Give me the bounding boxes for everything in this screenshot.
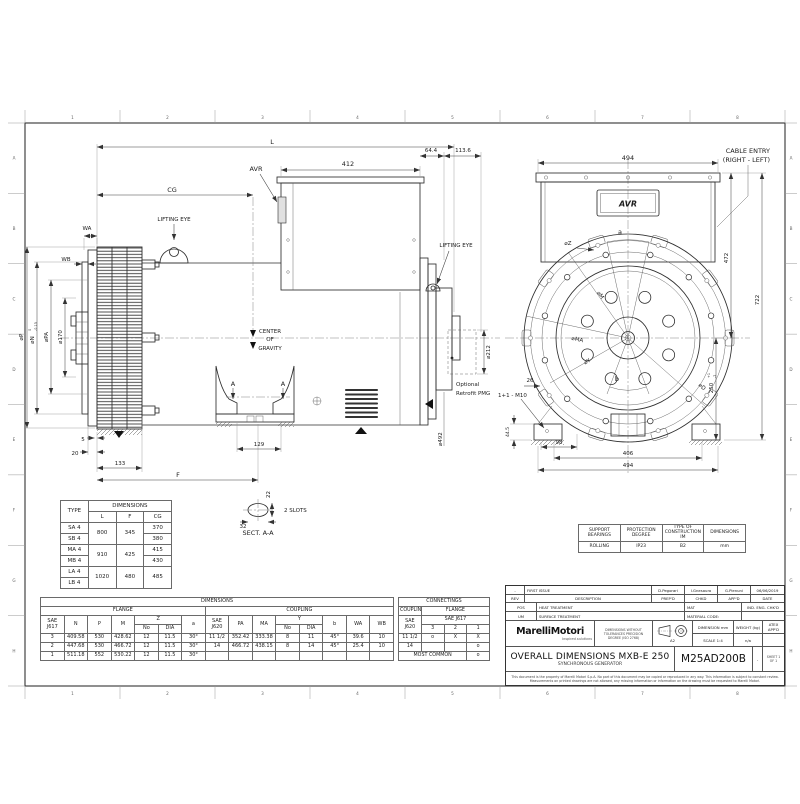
dim-N-tol-hi: 0 <box>28 329 32 331</box>
dims-table-cell: DIA <box>299 625 323 634</box>
sheet-of: OF 1 <box>770 659 777 663</box>
tolerance-note: DIMENSIONS WITHOUT TOLERANCES PRECISION … <box>594 621 652 646</box>
conn-table-cell: X <box>444 634 467 643</box>
dims-table-cell: M <box>111 616 135 634</box>
dim-44-5: 44.5 <box>505 427 511 437</box>
dims-table-cell: 30° <box>182 634 206 643</box>
type-table-cell: 370 <box>144 523 172 534</box>
atex-appd: ATEX APP'D <box>763 621 784 634</box>
approved-by: G.Pienuni <box>717 586 750 594</box>
frame-row-label: D <box>12 367 15 372</box>
atex-value <box>763 634 784 646</box>
label-cog-3: GRAVITY <box>258 346 282 352</box>
label-cog-2: OF <box>266 337 274 343</box>
frame-row-label: A <box>13 156 16 161</box>
dims-table-cell: 45° <box>323 643 347 652</box>
ground-symbol-icon <box>313 397 321 405</box>
dims-table-cell: 1 <box>41 652 65 661</box>
checked-by: I.Gnesauro <box>684 586 717 594</box>
frame-col-label: 5 <box>451 691 454 696</box>
dims-table-cell: 466.72 <box>111 643 135 652</box>
disclaimer-line2: Measurements on printed drawings are not… <box>530 679 761 683</box>
dims-table-cell: 511.18 <box>64 652 88 661</box>
weight-label: WEIGHT (kg) <box>734 621 762 634</box>
dims-table-cell: b <box>323 616 347 634</box>
type-table-cell: TYPE <box>61 501 89 523</box>
conn-table-cell: 3 <box>421 625 444 634</box>
frame-col-label: 4 <box>356 115 359 120</box>
type-table-cell: 415 <box>144 545 172 556</box>
mounting-foot <box>216 366 294 427</box>
dims-table-cell: Z <box>135 616 182 625</box>
type-table-cell: CG <box>144 512 172 523</box>
frame-col-label: 2 <box>166 691 169 696</box>
end-view: AVR <box>505 160 750 475</box>
dim-angle-b: b <box>615 375 619 383</box>
bear-table-cell: DIMENSIONS <box>704 525 746 542</box>
type-table-cell: 480 <box>116 567 144 589</box>
label-cable-entry-2: (RIGHT - LEFT) <box>723 156 770 164</box>
frame-row-label: A <box>790 156 793 161</box>
header-date: DATE <box>750 595 784 602</box>
dims-table-cell: 438.15 <box>252 643 276 652</box>
dims-table-cell: 45° <box>323 634 347 643</box>
dims-table-cell: COUPLING <box>205 607 393 616</box>
dims-table-cell: 30° <box>182 652 206 661</box>
dims-table-cell <box>323 652 347 661</box>
drawing-title-cell: OVERALL DIMENSIONS MXB-E 250 SYNCHRONOUS… <box>506 647 674 671</box>
dim-WA: WA <box>83 226 92 232</box>
label-cable-entry-1: CABLE ENTRY <box>726 147 770 155</box>
marelli-logo: MarelliMotori <box>508 626 592 637</box>
dims-table-cell: 333.38 <box>252 634 276 643</box>
type-table-cell: MB 4 <box>61 556 89 567</box>
title-block: - FIRST ISSUE D.Pegorari I.Gnesauro G.Pi… <box>505 585 785 686</box>
issue-date: 06/06/2019 <box>750 586 784 594</box>
frame-row-label: F <box>13 508 16 513</box>
projection-cell: A2 <box>652 621 692 646</box>
conn-table-cell: SAE J617 <box>421 616 489 625</box>
dims-table-cell: 12 <box>135 643 159 652</box>
frame-col-label: 1 <box>71 115 74 120</box>
conn-table-cell: o <box>421 634 444 643</box>
mat-label: MAT <box>684 603 741 611</box>
dim-N-tol-lo: -0.13 <box>34 322 38 331</box>
dims-table-cell <box>370 652 394 661</box>
dims-table-cell: 552 <box>88 652 112 661</box>
corrugated-plate <box>346 390 377 417</box>
frame-col-label: 8 <box>736 115 739 120</box>
frame-row-label: E <box>13 437 16 442</box>
dims-table-cell: P <box>88 616 112 634</box>
avr-unit-side <box>278 197 286 223</box>
dim-M: ⌀M <box>595 290 605 300</box>
dim-412: 412 <box>342 160 354 168</box>
conn-table-cell: SAE J620 <box>399 616 422 634</box>
conn-table-cell: 14 <box>399 643 422 652</box>
dims-table-cell: MA <box>252 616 276 634</box>
frame-col-label: 2 <box>166 115 169 120</box>
dims-table-cell: 530 <box>88 643 112 652</box>
bear-table-cell: B2 <box>662 541 704 552</box>
dim-113-6: 113.6 <box>455 148 471 154</box>
dims-table-cell: 352.42 <box>229 634 253 643</box>
dims-table-cell: 10 <box>370 634 394 643</box>
support-bearings-table: SUPPORT BEARINGSPROTECTION DEGREETYPE OF… <box>578 524 746 553</box>
dim-F: F <box>176 471 180 479</box>
frame-row-label: H <box>789 648 792 653</box>
dims-table-cell: Y <box>276 616 323 625</box>
dims-table-cell: No <box>276 625 300 634</box>
header-chkd: CHKD <box>684 595 717 602</box>
drawing-rev: - <box>752 647 762 671</box>
dims-table-cell: 11.5 <box>158 652 182 661</box>
dims-table-cell: 39.6 <box>346 634 370 643</box>
dims-table-cell: 14 <box>205 643 229 652</box>
dims-table-cell: 12 <box>135 652 159 661</box>
dims-table-cell: 25.4 <box>346 643 370 652</box>
frame-col-label: 3 <box>261 115 264 120</box>
frame-row-label: B <box>790 226 793 231</box>
dims-table-cell: 428.62 <box>111 634 135 643</box>
drawing-sheet: 1122334455667788AABBCCDDEEFFGGHH <box>0 0 800 800</box>
dims-table-cell: 409.58 <box>64 634 88 643</box>
dim-494-bottom: 494 <box>623 463 634 469</box>
frame-row-label: H <box>12 648 15 653</box>
label-pmg-2: Retrofit PMG <box>456 391 490 397</box>
dims-table-cell: 3 <box>41 634 65 643</box>
disclaimer: This document is the property of Marelli… <box>506 671 784 685</box>
rev-mark: - <box>506 586 524 594</box>
logo-cell: MarelliMotori Inspired solutions <box>506 621 594 646</box>
prepared-by: D.Pegorari <box>651 586 684 594</box>
dims-table-cell: 530 <box>88 634 112 643</box>
first-angle-projection-icon <box>656 624 690 638</box>
dim-scale-weight-group: DIMENSION mm SCALE 1:4 WEIGHT (kg) n/a A… <box>692 621 784 646</box>
rev-description: FIRST ISSUE <box>524 586 651 594</box>
dims-table-cell: 2 <box>41 643 65 652</box>
side-view-dimensions: L CG 412 64.4 113.6 AVR LIFTING EYE LIFT… <box>19 138 492 483</box>
frame-row-label: B <box>13 226 16 231</box>
bear-table-cell: SUPPORT BEARINGS <box>579 525 621 542</box>
dim-Z: ⌀Z <box>564 241 571 247</box>
ind-eng-chkd: IND. ENG. CHK'D <box>741 603 784 611</box>
type-table-cell: 1020 <box>88 567 116 589</box>
bear-table-cell: IP23 <box>620 541 662 552</box>
frame-row-label: G <box>12 578 15 583</box>
dim-494-top: 494 <box>622 154 634 162</box>
bear-table-cell: TYPE OF CONSTRUCTION IM <box>662 525 704 542</box>
dims-table-cell: FLANGE <box>41 607 206 616</box>
frame-row-label: C <box>13 296 16 301</box>
label-avr-side: AVR <box>250 165 263 173</box>
dim-20: 20 <box>72 451 79 457</box>
dims-table-cell: 30° <box>182 643 206 652</box>
conn-table-cell <box>444 643 467 652</box>
frame-row-label: D <box>789 367 792 372</box>
dims-table-cell <box>229 652 253 661</box>
dim-PA: ⌀PA <box>44 332 50 342</box>
dim-98: 98 <box>556 440 563 446</box>
type-table-cell: 910 <box>88 545 116 567</box>
airflow-left-icon <box>425 399 433 409</box>
label-avr-end: AVR <box>618 200 637 209</box>
weight-value: n/a <box>734 634 762 646</box>
material-code: MATERIAL CODE: <box>684 612 741 620</box>
dims-table-cell: 466.72 <box>229 643 253 652</box>
dims-table-cell: a <box>182 616 206 634</box>
label-cog-1: CENTER <box>259 329 281 335</box>
conn-table-cell: MOST COMMON <box>399 652 467 661</box>
bear-table-cell: ROLLING <box>579 541 621 552</box>
conn-table-cell: 11 1/2 <box>399 634 422 643</box>
dims-table-cell: 12 <box>135 634 159 643</box>
conn-table-cell: CONNECTINGS <box>399 598 490 607</box>
dim-angle-a: a <box>618 228 622 236</box>
type-table-cell: F <box>116 512 144 523</box>
frame-col-label: 6 <box>546 115 549 120</box>
frame-col-label: 7 <box>641 691 644 696</box>
frame-col-label: 3 <box>261 691 264 696</box>
dim-472: 472 <box>724 253 730 264</box>
section-aa-detail: 32 22 2 SLOTS SECT. A-A <box>240 491 308 537</box>
dim-CG: CG <box>167 186 177 194</box>
label-2-slots: 2 SLOTS <box>284 508 307 514</box>
dim-170: ⌀170 <box>58 330 64 344</box>
dims-table-cell: DIA <box>158 625 182 634</box>
flange-coupling-dimensions-table: DIMENSIONSFLANGECOUPLINGSAE J617NPMZaSAE… <box>40 597 394 661</box>
type-table-cell: L <box>88 512 116 523</box>
conn-table-cell <box>421 643 444 652</box>
conn-table-cell: X <box>467 634 490 643</box>
dims-table-cell <box>252 652 276 661</box>
dim-P: ⌀P <box>19 333 25 340</box>
drawing-subtitle: SYNCHRONOUS GENERATOR <box>558 662 622 667</box>
dim-MA: ⌀MA <box>571 336 584 344</box>
type-table-cell: 380 <box>144 534 172 545</box>
frame-row-label: F <box>790 508 793 513</box>
conn-table-cell: o <box>467 643 490 652</box>
dims-table-cell <box>346 652 370 661</box>
dim-722: 722 <box>755 295 761 306</box>
drawing-title: OVERALL DIMENSIONS MXB-E 250 <box>511 652 670 662</box>
dim-5: 5 <box>81 437 85 443</box>
label-pmg-1: Optional <box>456 382 480 388</box>
dims-table-cell <box>299 652 323 661</box>
frame-col-label: 5 <box>451 115 454 120</box>
dims-table-cell: WB <box>370 616 394 634</box>
section-mark-A1: A <box>231 380 236 388</box>
dims-table-cell: 11 1/2 <box>205 634 229 643</box>
dim-492: ⌀492 <box>438 432 444 446</box>
dims-table-cell: No <box>135 625 159 634</box>
frame-col-label: 7 <box>641 115 644 120</box>
header-appd: APP'D <box>717 595 750 602</box>
dims-table-cell: DIMENSIONS <box>41 598 394 607</box>
type-table-cell: 345 <box>116 523 144 545</box>
dim-N: ⌀N <box>30 336 36 343</box>
tolerance-line3: DEGREE (ISO 2768) <box>608 636 639 640</box>
dim-26: 26 <box>527 378 534 384</box>
dimension-unit: DIMENSION mm <box>693 621 733 634</box>
type-table-cell: 485 <box>144 567 172 589</box>
frame-col-label: 8 <box>736 691 739 696</box>
frame-col-label: 6 <box>546 691 549 696</box>
frame-row-label: G <box>789 578 792 583</box>
dims-table-cell: SAE J617 <box>41 616 65 634</box>
dims-table-cell: 11.5 <box>158 634 182 643</box>
conn-table-cell: COUPLING <box>399 607 422 616</box>
frame-col-label: 1 <box>71 691 74 696</box>
section-mark-A2: A <box>281 380 286 388</box>
type-table-cell: MA 4 <box>61 545 89 556</box>
dim-129: 129 <box>254 442 265 448</box>
sheet-cell: SHEET 1 OF 1 <box>762 647 784 671</box>
dims-table-cell: 14 <box>299 643 323 652</box>
type-table-cell: DIMENSIONS <box>88 501 171 512</box>
blank-cell <box>741 612 784 620</box>
type-table-cell: 800 <box>88 523 116 545</box>
label-sect-aa: SECT. A-A <box>242 529 274 537</box>
sheet-size: A2 <box>670 638 675 643</box>
dims-table-cell: 8 <box>276 634 300 643</box>
type-table-cell: SB 4 <box>61 534 89 545</box>
surface-treatment: SURFACE TREATMENT <box>536 612 684 620</box>
dims-table-cell: 530.22 <box>111 652 135 661</box>
conn-table-cell: 2 <box>444 625 467 634</box>
frame-row-label: E <box>790 437 793 442</box>
type-table-cell: SA 4 <box>61 523 89 534</box>
dim-250-tol-lo: -2 <box>713 375 717 378</box>
frame-row-label: C <box>790 296 793 301</box>
frame-col-label: 4 <box>356 691 359 696</box>
conn-table-cell: FLANGE <box>421 607 489 616</box>
dim-212: ⌀212 <box>486 345 492 359</box>
type-table-cell: 430 <box>144 556 172 567</box>
header-rev: REV <box>506 595 524 602</box>
dims-table-cell: 11.5 <box>158 643 182 652</box>
dims-table-cell: WA <box>346 616 370 634</box>
connectings-table: CONNECTINGSCOUPLINGFLANGESAE J620SAE J61… <box>398 597 490 661</box>
dims-table-cell: N <box>64 616 88 634</box>
label-lifting-eye-left: LIFTING EYE <box>157 217 191 223</box>
dim-L: L <box>270 138 274 146</box>
dims-table-cell: PA <box>229 616 253 634</box>
dims-table-cell: 447.68 <box>64 643 88 652</box>
label-pos: POS <box>506 603 536 611</box>
dim-m10: 1+1 - M10 <box>498 393 527 399</box>
bear-table-cell: PROTECTION DEGREE <box>620 525 662 542</box>
conn-table-cell: o <box>467 652 490 661</box>
dims-table-cell <box>276 652 300 661</box>
drawing-number: M25AD200B <box>674 647 752 671</box>
type-table-cell: 425 <box>116 545 144 567</box>
label-lifting-eye-right: LIFTING EYE <box>439 243 473 249</box>
scale-value: SCALE 1:4 <box>693 634 733 646</box>
header-prepd: PREP'D <box>651 595 684 602</box>
airflow-up-icon <box>355 427 367 434</box>
type-table-cell: LA 4 <box>61 567 89 578</box>
dim-133: 133 <box>115 461 126 467</box>
dims-table-cell: SAE J620 <box>205 616 229 634</box>
dims-table-cell: 11 <box>299 634 323 643</box>
label-um: UM <box>506 612 536 620</box>
dim-406: 406 <box>623 451 634 457</box>
dim-250: 250 <box>709 382 715 393</box>
header-description: DESCRIPTION <box>524 595 651 602</box>
side-view <box>60 177 500 438</box>
dim-64-4: 64.4 <box>425 148 438 154</box>
dim-22: 22 <box>266 491 272 498</box>
lifting-eye-left <box>160 248 188 264</box>
dim-D: ⌀D <box>697 383 707 392</box>
marelli-tagline: Inspired solutions <box>508 637 592 641</box>
dims-table-cell <box>205 652 229 661</box>
type-dimensions-table: TYPEDIMENSIONSLFCGSA 4800345370SB 4380MA… <box>60 500 172 589</box>
bear-table-cell: mm <box>704 541 746 552</box>
dims-table-cell: 8 <box>276 643 300 652</box>
dims-table-cell: 10 <box>370 643 394 652</box>
conn-table-cell: 1 <box>467 625 490 634</box>
dim-250-tol-hi: +1 <box>707 373 711 378</box>
type-table-cell: LB 4 <box>61 578 89 589</box>
heat-treatment: HEAT TREATMENT <box>536 603 684 611</box>
